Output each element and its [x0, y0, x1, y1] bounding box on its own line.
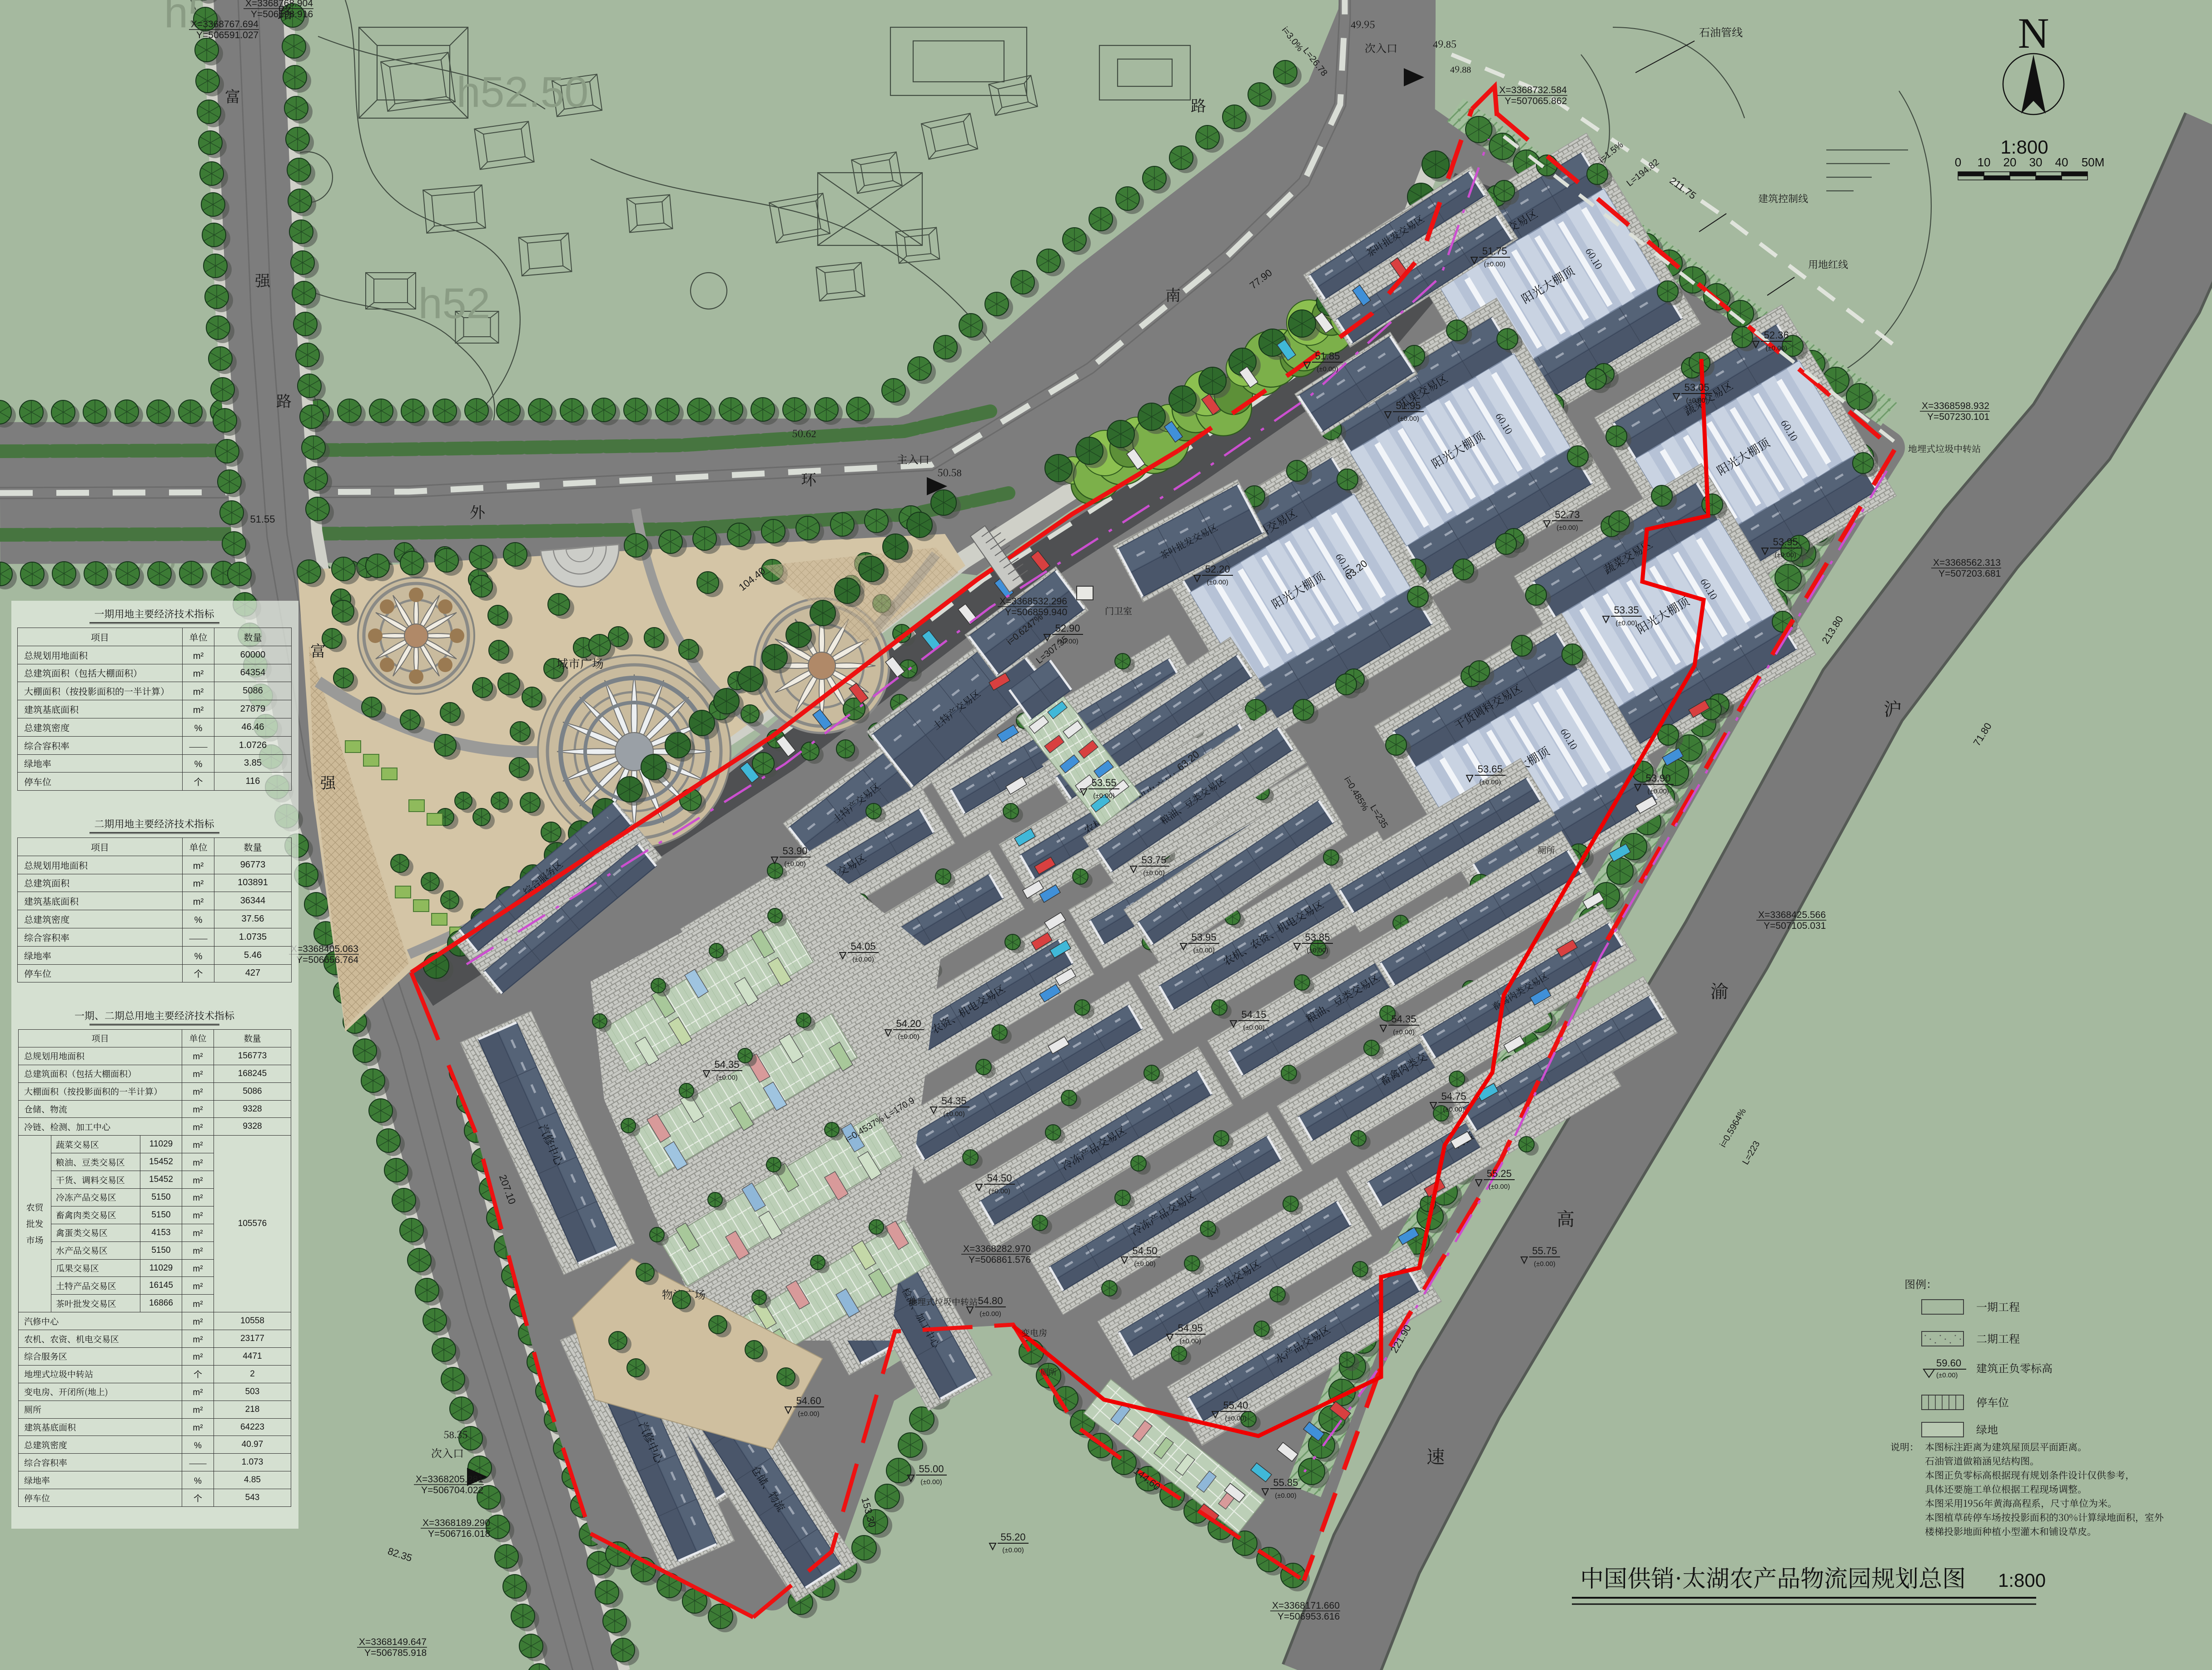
svg-text:50.58: 50.58 — [937, 465, 961, 479]
svg-text:X=3368149.647: X=3368149.647 — [359, 1637, 427, 1647]
svg-text:54.50: 54.50 — [987, 1172, 1012, 1184]
svg-text:53.65: 53.65 — [1477, 763, 1502, 775]
svg-text:说明：: 说明： — [1890, 1440, 1919, 1454]
svg-text:54.05: 54.05 — [850, 941, 875, 952]
svg-text:53.55: 53.55 — [1091, 777, 1116, 788]
svg-text:X=3368532.296: X=3368532.296 — [999, 596, 1067, 607]
svg-text:次入口: 次入口 — [431, 1445, 464, 1461]
svg-text:具体还要施工单位根据工程现场调整。: 具体还要施工单位根据工程现场调整。 — [1925, 1482, 2087, 1496]
svg-text:54.35: 54.35 — [1391, 1013, 1416, 1025]
svg-text:渝: 渝 — [1710, 977, 1729, 1003]
svg-text:53.35: 53.35 — [1614, 604, 1639, 616]
svg-text:门卫室: 门卫室 — [1105, 604, 1132, 617]
svg-text:N: N — [2018, 0, 2049, 60]
svg-text:Y=507230.101: Y=507230.101 — [1927, 412, 1989, 422]
svg-text:(±0.00): (±0.00) — [1207, 578, 1228, 586]
svg-text:富: 富 — [225, 85, 240, 107]
svg-text:石油管线: 石油管线 — [1699, 24, 1743, 40]
svg-text:1:800: 1:800 — [2000, 136, 2048, 158]
svg-text:路: 路 — [276, 389, 292, 411]
svg-text:54.60: 54.60 — [796, 1395, 821, 1406]
svg-text:高: 高 — [1556, 1205, 1575, 1231]
svg-text:49.85: 49.85 — [1433, 37, 1456, 51]
svg-text:53.85: 53.85 — [1305, 932, 1330, 943]
svg-text:X=3368767.694: X=3368767.694 — [191, 19, 258, 30]
svg-text:0: 0 — [1955, 155, 1961, 169]
svg-text:10: 10 — [1978, 155, 1991, 169]
svg-text:强: 强 — [255, 269, 270, 291]
svg-text:(±0.00): (±0.00) — [1479, 778, 1501, 786]
svg-text:55.75: 55.75 — [1532, 1245, 1557, 1256]
svg-text:X=3368189.290: X=3368189.290 — [423, 1518, 490, 1528]
svg-text:绿地: 绿地 — [1976, 1421, 1998, 1437]
svg-text:54.20: 54.20 — [896, 1018, 921, 1029]
svg-text:54.50: 54.50 — [1132, 1245, 1157, 1256]
svg-text:(±0.00): (±0.00) — [1307, 947, 1328, 954]
svg-text:49.88: 49.88 — [1450, 62, 1471, 75]
svg-text:X=3368425.566: X=3368425.566 — [1758, 910, 1826, 920]
svg-text:40: 40 — [2055, 155, 2068, 169]
svg-text:用地红线: 用地红线 — [1808, 257, 1848, 271]
svg-text:(±0.00): (±0.00) — [1093, 792, 1114, 800]
svg-text:(±0.00): (±0.00) — [1765, 344, 1787, 352]
svg-text:Y=506861.576: Y=506861.576 — [969, 1255, 1031, 1265]
svg-text:(±0.00): (±0.00) — [1647, 788, 1669, 795]
svg-text:(±0.00): (±0.00) — [989, 1187, 1010, 1195]
svg-text:X=3368282.970: X=3368282.970 — [963, 1244, 1031, 1254]
svg-text:Y=506704.022: Y=506704.022 — [421, 1485, 483, 1496]
svg-text:X=3368598.932: X=3368598.932 — [1922, 401, 1989, 411]
svg-text:54.80: 54.80 — [978, 1295, 1003, 1306]
svg-text:53.05: 53.05 — [1684, 382, 1709, 393]
svg-text:Y=506591.027: Y=506591.027 — [196, 30, 258, 40]
svg-text:建筑正负零标高: 建筑正负零标高 — [1976, 1360, 2053, 1376]
svg-text:(±0.00): (±0.00) — [1002, 1546, 1024, 1554]
svg-text:h52.50: h52.50 — [457, 68, 589, 116]
svg-text:(±0.00): (±0.00) — [898, 1033, 919, 1041]
svg-text:中国供销·太湖农产品物流园规划总图: 中国供销·太湖农产品物流园规划总图 — [1580, 1560, 1966, 1594]
svg-text:厕所: 厕所 — [1538, 844, 1555, 856]
svg-text:(±0.00): (±0.00) — [1243, 1024, 1264, 1032]
svg-text:55.40: 55.40 — [1223, 1400, 1248, 1411]
svg-text:(±0.00): (±0.00) — [1443, 1106, 1464, 1113]
svg-text:(±0.00): (±0.00) — [1484, 260, 1505, 268]
svg-text:(±0.00): (±0.00) — [1134, 1260, 1155, 1268]
svg-text:(±0.00): (±0.00) — [1686, 397, 1707, 404]
svg-text:楼梯投影地面种植小型灌木和铺设草皮。: 楼梯投影地面种植小型灌木和铺设草皮。 — [1925, 1525, 2097, 1538]
svg-text:(±0.00): (±0.00) — [1936, 1371, 1958, 1379]
svg-text:地埋式垃圾中转站: 地埋式垃圾中转站 — [909, 1296, 978, 1308]
svg-text:51.95: 51.95 — [1396, 400, 1421, 411]
svg-text:富: 富 — [310, 639, 326, 661]
svg-text:20: 20 — [2003, 155, 2017, 169]
svg-text:一期工程: 一期工程 — [1976, 1298, 2020, 1314]
svg-text:55.20: 55.20 — [1000, 1531, 1025, 1543]
svg-text:58.35: 58.35 — [443, 1427, 467, 1441]
svg-text:(±0.00): (±0.00) — [716, 1074, 737, 1082]
svg-text:本图正负零标高根据现有规划条件设计仅供参考，: 本图正负零标高根据现有规划条件设计仅供参考， — [1925, 1468, 2135, 1482]
svg-text:主入口: 主入口 — [897, 451, 930, 467]
svg-text:53.95: 53.95 — [1191, 932, 1216, 943]
svg-text:55.00: 55.00 — [919, 1463, 944, 1475]
svg-text:(±0.00): (±0.00) — [784, 860, 805, 868]
svg-text:(±0.00): (±0.00) — [1275, 1492, 1296, 1500]
svg-text:(±0.00): (±0.00) — [979, 1310, 1001, 1318]
svg-text:Y=506953.616: Y=506953.616 — [1277, 1611, 1340, 1622]
svg-text:Y=506716.018: Y=506716.018 — [428, 1529, 490, 1539]
svg-text:强: 强 — [320, 771, 336, 793]
svg-text:(±0.00): (±0.00) — [1488, 1183, 1510, 1191]
svg-text:(±0.00): (±0.00) — [1193, 947, 1214, 954]
svg-text:次入口: 次入口 — [1365, 40, 1397, 55]
svg-text:(±0.00): (±0.00) — [1556, 524, 1578, 532]
svg-text:Y=506785.918: Y=506785.918 — [364, 1648, 427, 1658]
svg-text:图例：: 图例： — [1904, 1276, 1937, 1291]
svg-text:环: 环 — [801, 468, 816, 490]
svg-text:(±0.00): (±0.00) — [1534, 1260, 1555, 1268]
svg-text:54.15: 54.15 — [1241, 1009, 1266, 1020]
svg-text:55.85: 55.85 — [1273, 1477, 1298, 1488]
svg-text:h52: h52 — [418, 279, 491, 328]
svg-text:59.60: 59.60 — [1936, 1357, 1961, 1369]
svg-text:52.73: 52.73 — [1555, 509, 1580, 520]
svg-text:52.36: 52.36 — [1764, 329, 1789, 341]
svg-text:二期工程: 二期工程 — [1976, 1330, 2020, 1346]
svg-text:外: 外 — [470, 500, 485, 523]
svg-text:53.75: 53.75 — [1141, 854, 1166, 866]
svg-text:(±0.00): (±0.00) — [1179, 1337, 1201, 1345]
svg-text:53.90: 53.90 — [782, 845, 807, 857]
svg-text:厕所: 厕所 — [1040, 1366, 1057, 1378]
svg-text:(±0.00): (±0.00) — [943, 1110, 964, 1118]
svg-text:49.95: 49.95 — [1351, 17, 1375, 31]
svg-text:(±0.00): (±0.00) — [1393, 1028, 1414, 1036]
svg-text:变电房: 变电房 — [1021, 1326, 1047, 1339]
svg-text:速: 速 — [1427, 1443, 1445, 1469]
svg-text:Y=506598.916: Y=506598.916 — [251, 9, 313, 20]
svg-text:53.90: 53.90 — [1645, 773, 1670, 784]
svg-text:Y=507203.681: Y=507203.681 — [1939, 568, 2001, 579]
svg-text:Y=506656.764: Y=506656.764 — [296, 955, 359, 965]
svg-text:(±0.00): (±0.00) — [1775, 551, 1796, 559]
svg-text:沪: 沪 — [1884, 695, 1902, 721]
svg-text:本图采用1956年黄海高程系，尺寸单位为米。: 本图采用1956年黄海高程系，尺寸单位为米。 — [1925, 1496, 2117, 1510]
svg-text:(±0.00): (±0.00) — [1143, 869, 1164, 877]
svg-text:X=3368171.660: X=3368171.660 — [1272, 1600, 1340, 1611]
svg-text:(±0.00): (±0.00) — [1397, 415, 1419, 423]
svg-text:(±0.00): (±0.00) — [920, 1478, 942, 1486]
svg-text:(±0.00): (±0.00) — [1317, 365, 1338, 373]
svg-text:南: 南 — [1165, 283, 1181, 305]
svg-text:53.95: 53.95 — [1773, 536, 1798, 548]
svg-text:本图标注距离为建筑屋顶层平面距离。: 本图标注距离为建筑屋顶层平面距离。 — [1925, 1440, 2087, 1454]
svg-text:30: 30 — [2029, 155, 2043, 169]
svg-text:X=3368562.313: X=3368562.313 — [1933, 558, 2001, 568]
svg-text:52.20: 52.20 — [1205, 563, 1230, 575]
svg-text:路: 路 — [1191, 94, 1206, 116]
svg-text:Y=507105.031: Y=507105.031 — [1764, 921, 1826, 931]
svg-text:54.35: 54.35 — [941, 1095, 966, 1107]
svg-text:52.90: 52.90 — [1055, 623, 1080, 634]
svg-text:石油管道做箱涵见结构图。: 石油管道做箱涵见结构图。 — [1925, 1454, 2039, 1468]
svg-text:54.35: 54.35 — [714, 1059, 739, 1070]
svg-text:城市广场: 城市广场 — [557, 655, 604, 672]
svg-text:建筑控制线: 建筑控制线 — [1758, 191, 1808, 205]
svg-text:(±0.00): (±0.00) — [1225, 1415, 1246, 1422]
svg-text:(±0.00): (±0.00) — [798, 1410, 819, 1418]
svg-text:X=3368732.584: X=3368732.584 — [1499, 85, 1567, 95]
svg-text:54.75: 54.75 — [1441, 1091, 1466, 1102]
svg-text:54.95: 54.95 — [1178, 1322, 1203, 1334]
svg-text:X=3368405.063: X=3368405.063 — [291, 944, 358, 954]
svg-text:50.62: 50.62 — [792, 426, 816, 440]
svg-text:55.25: 55.25 — [1486, 1168, 1511, 1179]
svg-text:本图植草砖停车场按投影面积的30%计算绿地面积，室外: 本图植草砖停车场按投影面积的30%计算绿地面积，室外 — [1925, 1510, 2164, 1524]
svg-text:(±0.00): (±0.00) — [852, 956, 874, 963]
svg-text:51.85: 51.85 — [1315, 350, 1340, 362]
svg-text:1:800: 1:800 — [1998, 1570, 2046, 1591]
svg-text:X=3368205.281: X=3368205.281 — [416, 1474, 483, 1485]
svg-text:(±0.00): (±0.00) — [1616, 619, 1637, 627]
svg-text:51.55: 51.55 — [250, 513, 275, 525]
svg-text:X=3368768.904: X=3368768.904 — [245, 0, 313, 9]
svg-text:停车位: 停车位 — [1976, 1394, 2009, 1410]
svg-text:地埋式垃圾中转站: 地埋式垃圾中转站 — [1908, 442, 1981, 455]
svg-text:51.75: 51.75 — [1482, 245, 1507, 257]
svg-text:50M: 50M — [2082, 155, 2105, 169]
svg-text:Y=507065.862: Y=507065.862 — [1505, 96, 1567, 106]
